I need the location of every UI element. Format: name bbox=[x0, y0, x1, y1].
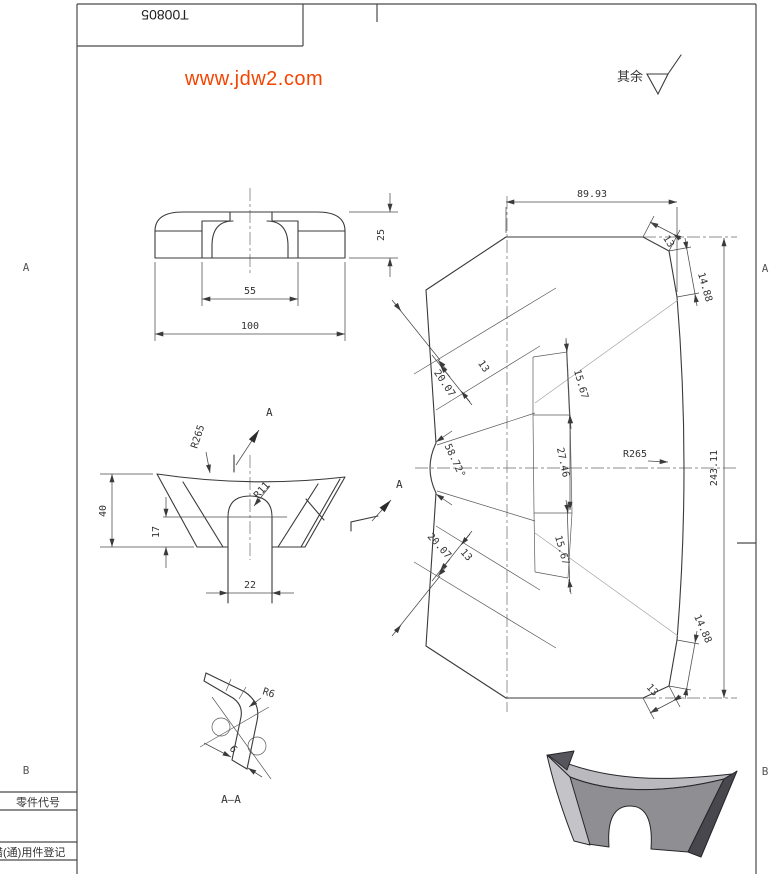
dim-center-band: 27.46 bbox=[554, 415, 571, 510]
svg-text:243.11: 243.11 bbox=[709, 450, 720, 486]
part-3d-view bbox=[547, 751, 737, 857]
dim-face-radius: R265 bbox=[623, 449, 668, 462]
dim-height: 40 bbox=[98, 474, 194, 547]
roughness-icon bbox=[647, 55, 681, 94]
svg-text:89.93: 89.93 bbox=[577, 189, 607, 200]
svg-text:58.72°: 58.72° bbox=[442, 442, 467, 479]
svg-text:14.88: 14.88 bbox=[695, 271, 714, 303]
dim-overall-length: 243.11 bbox=[709, 238, 724, 698]
roller-circle bbox=[248, 737, 266, 755]
svg-text:R6: R6 bbox=[261, 686, 276, 700]
dim-slot-width: 22 bbox=[206, 580, 294, 593]
svg-text:22: 22 bbox=[244, 580, 256, 591]
dim-depth: 25 bbox=[349, 193, 398, 277]
watermark: www.jdw2.com bbox=[184, 68, 323, 90]
section-arrow-label: A bbox=[396, 478, 403, 491]
dim-band-upper: 20.07 13 bbox=[392, 300, 491, 405]
svg-text:20.07: 20.07 bbox=[425, 531, 453, 561]
svg-text:100: 100 bbox=[241, 321, 259, 332]
dim-half-width-top: 89.93 bbox=[506, 189, 677, 292]
dim-flange-top: 15.67 bbox=[566, 338, 590, 429]
sheet-frame: T00805 零件代号 借(通)用件登记 A A B B bbox=[0, 4, 769, 874]
svg-text:13: 13 bbox=[475, 359, 491, 375]
zone-label-left-b: B bbox=[23, 764, 30, 777]
surface-note-label: 其余 bbox=[617, 69, 643, 84]
view-section-aa: R6 6 A—A bbox=[200, 673, 276, 806]
zone-label-right-a: A bbox=[762, 262, 769, 275]
dim-slot-width: 55 bbox=[202, 262, 298, 306]
svg-text:13: 13 bbox=[458, 547, 474, 563]
section-arrow-upper: A bbox=[234, 406, 273, 472]
view-front: 25 55 100 bbox=[155, 188, 398, 341]
dim-flange-bottom: 15.67 bbox=[552, 500, 571, 594]
part-number: T00805 bbox=[141, 7, 189, 23]
svg-text:R11: R11 bbox=[252, 480, 272, 501]
svg-text:27.46: 27.46 bbox=[554, 447, 571, 479]
dim-slot-center-height: 17 bbox=[151, 497, 166, 568]
svg-text:15.67: 15.67 bbox=[571, 368, 590, 400]
dim-bend-radius: R6 bbox=[249, 686, 276, 707]
development-outline bbox=[426, 237, 684, 698]
svg-text:R265: R265 bbox=[189, 424, 207, 450]
svg-text:20.07: 20.07 bbox=[431, 368, 457, 399]
section-arrow-lower: A bbox=[351, 478, 403, 531]
roller-circle bbox=[212, 718, 230, 736]
view-side: 40 17 22 R265 R11 A bbox=[98, 406, 403, 603]
dim-band-lower: 20.07 13 bbox=[392, 531, 474, 636]
svg-text:17: 17 bbox=[151, 526, 162, 538]
table-row-part-code: 零件代号 bbox=[16, 796, 60, 809]
dim-slot-radius: R11 bbox=[252, 480, 272, 506]
section-label: A—A bbox=[221, 793, 241, 806]
surface-note: 其余 bbox=[617, 55, 681, 94]
section-arrow-label: A bbox=[266, 406, 273, 419]
dim-top-radius: R265 bbox=[189, 424, 210, 473]
dim-overall-width: 100 bbox=[155, 262, 345, 341]
svg-text:25: 25 bbox=[376, 229, 387, 241]
svg-text:R265: R265 bbox=[623, 449, 647, 460]
drawing-canvas: T00805 零件代号 借(通)用件登记 A A B B www.jdw2.co… bbox=[0, 0, 773, 874]
zone-label-left-a: A bbox=[23, 261, 30, 274]
svg-text:40: 40 bbox=[98, 505, 109, 517]
svg-text:55: 55 bbox=[244, 286, 256, 297]
svg-text:14.88: 14.88 bbox=[691, 613, 713, 645]
dim-top-bends: 13 14.88 bbox=[643, 216, 714, 306]
drawing-sheet: T00805 零件代号 借(通)用件登记 A A B B www.jdw2.co… bbox=[0, 0, 773, 874]
table-row-common-parts: 借(通)用件登记 bbox=[0, 845, 65, 859]
view-development: 89.93 243.11 R265 58.72° 20.07 13 bbox=[392, 189, 737, 719]
zone-label-right-b: B bbox=[762, 765, 769, 778]
